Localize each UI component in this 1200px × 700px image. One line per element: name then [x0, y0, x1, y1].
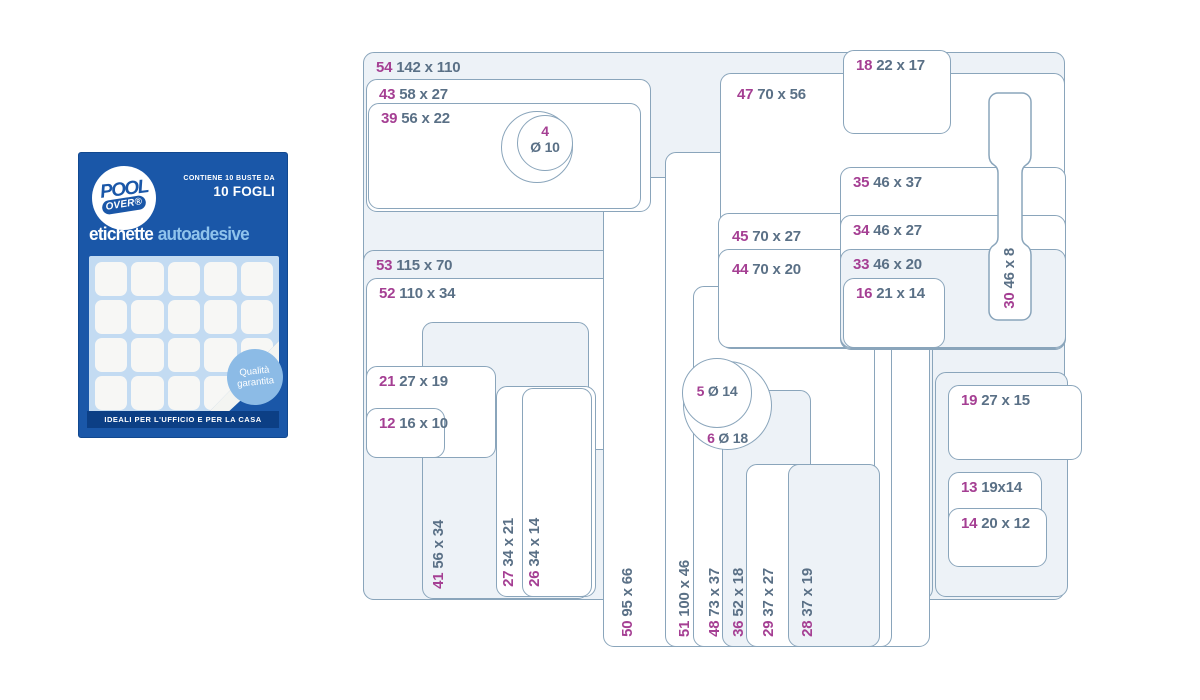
- sheet-label-cell: [204, 262, 236, 296]
- size-dims: 115 x 70: [396, 257, 452, 274]
- title-autoadesive: autoadesive: [158, 223, 249, 244]
- sheet-label-cell: [168, 338, 200, 372]
- size-label-27: 27 34 x 21: [499, 518, 519, 587]
- size-code: 54: [376, 59, 392, 76]
- size-code: 35: [853, 174, 869, 191]
- size-code: 51: [676, 621, 693, 637]
- label-size-19: 19 27 x 15: [948, 385, 1082, 460]
- size-label-41: 41 56 x 34: [429, 520, 449, 589]
- size-code: 39: [381, 110, 397, 127]
- size-dims: 19x14: [981, 479, 1022, 496]
- size-code: 13: [961, 479, 977, 496]
- size-code: 52: [379, 285, 395, 302]
- size-dims: Ø 18: [718, 430, 748, 446]
- size-code: 36: [730, 621, 747, 637]
- title-etichette: etichette: [89, 223, 153, 244]
- size-code: 41: [430, 573, 447, 589]
- size-label-5: 5 Ø 14: [683, 383, 751, 399]
- size-dims: 142 x 110: [396, 59, 460, 76]
- size-code: 48: [706, 621, 723, 637]
- sheet-label-cell: [131, 300, 163, 334]
- size-dims: 27 x 15: [981, 392, 1030, 409]
- product-title: etichetteautoadesive: [89, 223, 249, 245]
- size-label-21: 21 27 x 19: [379, 373, 448, 391]
- size-label-14: 14 20 x 12: [961, 515, 1030, 533]
- size-dims: 37 x 19: [799, 568, 816, 617]
- size-label-28: 28 37 x 19: [798, 568, 818, 637]
- sheet-label-cell: [95, 338, 127, 372]
- size-code: 53: [376, 257, 392, 274]
- size-label-6: 6 Ø 18: [684, 430, 771, 446]
- size-dims: 34 x 14: [526, 518, 543, 567]
- sheet-label-cell: [131, 376, 163, 410]
- size-label-47: 47 70 x 56: [737, 86, 806, 104]
- size-dims: 56 x 34: [430, 520, 447, 569]
- size-code: 29: [760, 621, 777, 637]
- size-dims: 100 x 46: [676, 560, 693, 617]
- size-code: 19: [961, 392, 977, 409]
- size-dims: Ø 10: [530, 139, 560, 155]
- size-dims: 70 x 20: [752, 261, 801, 278]
- sheet-label-cell: [241, 300, 273, 334]
- page: 54 142 x 11053 115 x 7052 110 x 3450 95 …: [0, 0, 1200, 700]
- size-code: 6: [707, 430, 715, 446]
- size-label-33: 33 46 x 20: [853, 256, 922, 274]
- size-code: 21: [379, 373, 395, 390]
- size-code: 12: [379, 415, 395, 432]
- sheet-label-cell: [95, 376, 127, 410]
- size-dims: 46 x 8: [1001, 248, 1018, 289]
- sheet-label-cell: [131, 338, 163, 372]
- package-footer-strip: IDEALI PER L'UFFICIO E PER LA CASA: [87, 411, 279, 428]
- sheet-label-cell: [168, 262, 200, 296]
- size-label-35: 35 46 x 37: [853, 174, 922, 192]
- size-dims: 56 x 22: [401, 110, 450, 127]
- sheet-label-cell: [204, 300, 236, 334]
- size-code: 34: [853, 222, 869, 239]
- size-label-50: 50 95 x 66: [618, 568, 638, 637]
- label-size-18: 18 22 x 17: [843, 50, 951, 134]
- size-dims: 20 x 12: [981, 515, 1030, 532]
- size-label-19: 19 27 x 15: [961, 392, 1030, 410]
- label-size-16: 16 21 x 14: [843, 278, 945, 348]
- size-label-53: 53 115 x 70: [376, 257, 452, 275]
- size-label-4: 4Ø 10: [518, 123, 572, 155]
- contents-note: CONTIENE 10 BUSTE DA 10 FOGLI: [183, 175, 275, 199]
- size-code: 33: [853, 256, 869, 273]
- sheet-label-cell: [168, 300, 200, 334]
- size-dims: 34 x 21: [500, 518, 517, 567]
- size-dims: 110 x 34: [399, 285, 455, 302]
- sheet-label-cell: [95, 300, 127, 334]
- size-label-34: 34 46 x 27: [853, 222, 922, 240]
- size-code: 5: [697, 383, 705, 399]
- size-code: 26: [526, 571, 543, 587]
- size-dims: 37 x 27: [760, 568, 777, 617]
- label-size-12: 12 16 x 10: [366, 408, 445, 458]
- size-label-43: 43 58 x 27: [379, 86, 448, 104]
- size-label-44: 44 70 x 20: [732, 261, 801, 279]
- size-code: 16: [856, 285, 872, 302]
- size-dims: 16 x 10: [399, 415, 448, 432]
- size-code: 18: [856, 57, 872, 74]
- poolover-logo: POOL OVER®: [92, 166, 156, 230]
- sheet-label-cell: [131, 262, 163, 296]
- size-code: 47: [737, 86, 753, 103]
- size-dims: 27 x 19: [399, 373, 448, 390]
- size-label-18: 18 22 x 17: [856, 57, 925, 75]
- label-size-4: 4Ø 10: [517, 115, 573, 171]
- sheet-label-cell: [168, 376, 200, 410]
- label-size-5: 5 Ø 14: [682, 358, 752, 428]
- contents-line2: 10 FOGLI: [183, 184, 275, 199]
- product-package: POOL OVER® CONTIENE 10 BUSTE DA 10 FOGLI…: [78, 152, 288, 438]
- size-label-52: 52 110 x 34: [379, 285, 455, 303]
- size-dims: 46 x 37: [873, 174, 922, 191]
- label-size-14: 14 20 x 12: [948, 508, 1047, 567]
- size-label-16: 16 21 x 14: [856, 285, 925, 303]
- size-dims: 70 x 56: [757, 86, 806, 103]
- size-label-39: 39 56 x 22: [381, 110, 450, 128]
- size-label-29: 29 37 x 27: [759, 568, 779, 637]
- size-code: 43: [379, 86, 395, 103]
- size-label-30: 30 46 x 8: [1000, 248, 1020, 309]
- size-dims: 73 x 37: [706, 568, 723, 617]
- size-dims: 22 x 17: [876, 57, 925, 74]
- size-label-54: 54 142 x 110: [376, 59, 460, 77]
- size-dims: 58 x 27: [399, 86, 448, 103]
- size-label-45: 45 70 x 27: [732, 228, 801, 246]
- size-dims: 46 x 20: [873, 256, 922, 273]
- size-label-12: 12 16 x 10: [379, 415, 448, 433]
- size-dims: 52 x 18: [730, 568, 747, 617]
- size-code: 50: [619, 621, 636, 637]
- size-code: 14: [961, 515, 977, 532]
- size-label-26: 26 34 x 14: [525, 518, 545, 587]
- sheet-label-cell: [241, 262, 273, 296]
- label-size-28: 28 37 x 19: [788, 464, 880, 647]
- size-code: 28: [799, 621, 816, 637]
- sheet-label-cell: [95, 262, 127, 296]
- size-label-51: 51 100 x 46: [675, 560, 695, 637]
- size-dims: 95 x 66: [619, 568, 636, 617]
- size-dims: 21 x 14: [876, 285, 925, 302]
- size-dims: 70 x 27: [752, 228, 801, 245]
- size-code: 30: [1001, 293, 1018, 309]
- size-dims: Ø 14: [708, 383, 738, 399]
- size-code: 45: [732, 228, 748, 245]
- size-code: 27: [500, 571, 517, 587]
- size-dims: 46 x 27: [873, 222, 922, 239]
- contents-line1: CONTIENE 10 BUSTE DA: [183, 175, 275, 182]
- size-code: 44: [732, 261, 748, 278]
- label-size-30: 30 46 x 8: [988, 92, 1032, 321]
- size-code: 4: [541, 123, 549, 139]
- size-label-13: 13 19x14: [961, 479, 1022, 497]
- label-size-26: 26 34 x 14: [522, 388, 592, 597]
